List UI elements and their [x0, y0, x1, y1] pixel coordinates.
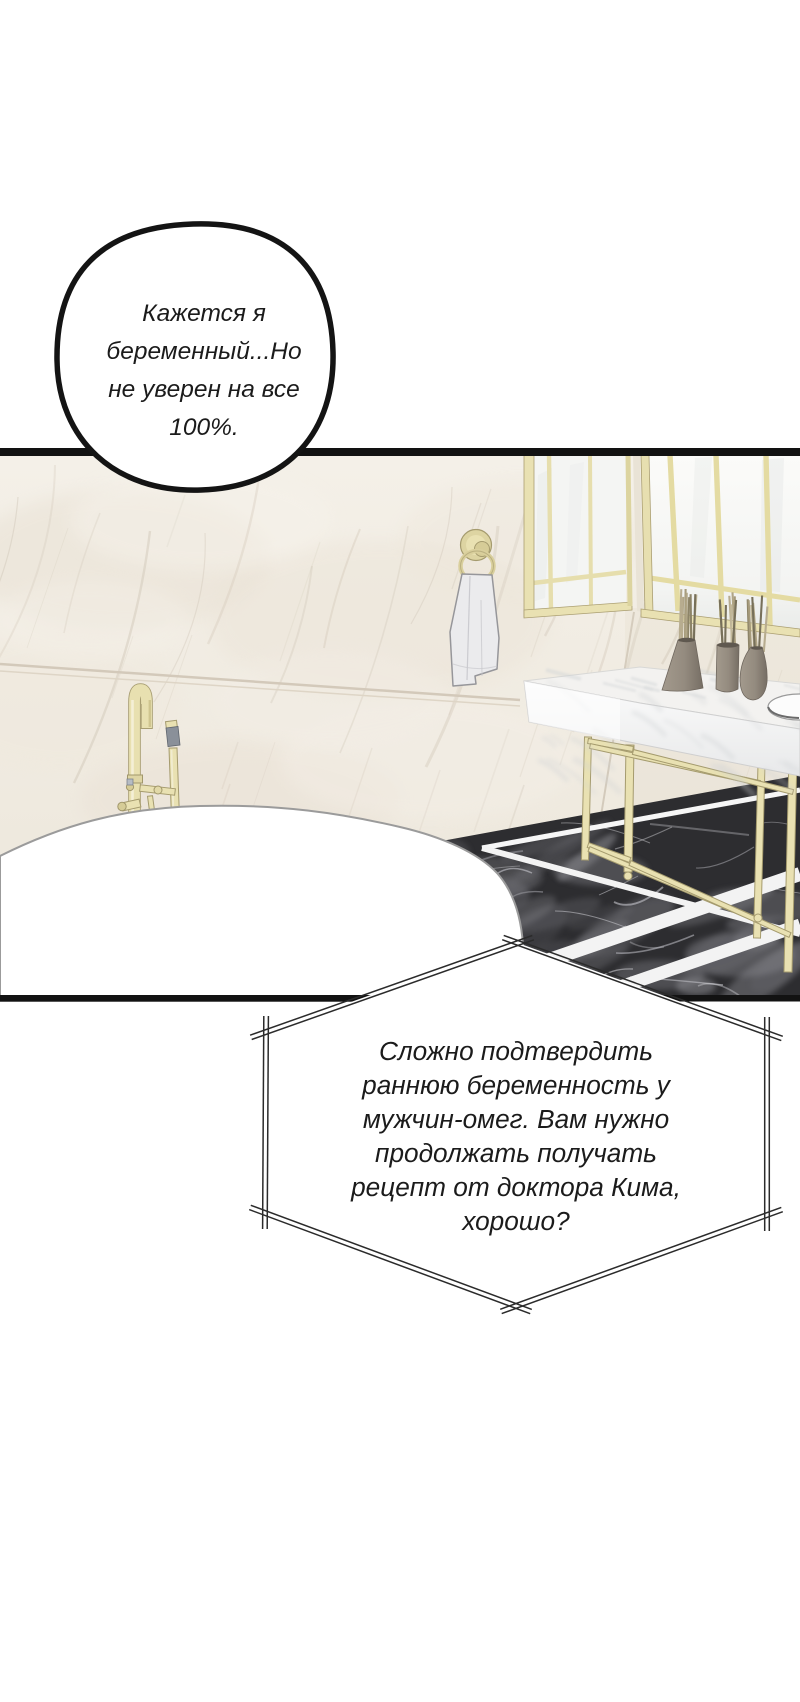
svg-text:Сложно подтвердить: Сложно подтвердить — [379, 1036, 653, 1066]
svg-text:раннюю беременность у: раннюю беременность у — [361, 1070, 672, 1100]
svg-text:100%.: 100%. — [169, 414, 238, 441]
svg-text:хорошо?: хорошо? — [460, 1206, 570, 1236]
svg-text:не уверен на все: не уверен на все — [108, 376, 300, 403]
svg-text:мужчин-омег. Вам нужно: мужчин-омег. Вам нужно — [363, 1104, 669, 1134]
svg-text:Кажется я: Кажется я — [142, 300, 266, 327]
svg-text:продолжать получать: продолжать получать — [375, 1138, 657, 1168]
svg-text:беременный...Но: беременный...Но — [106, 338, 301, 365]
svg-text:рецепт от доктора Кима,: рецепт от доктора Кима, — [350, 1172, 681, 1202]
